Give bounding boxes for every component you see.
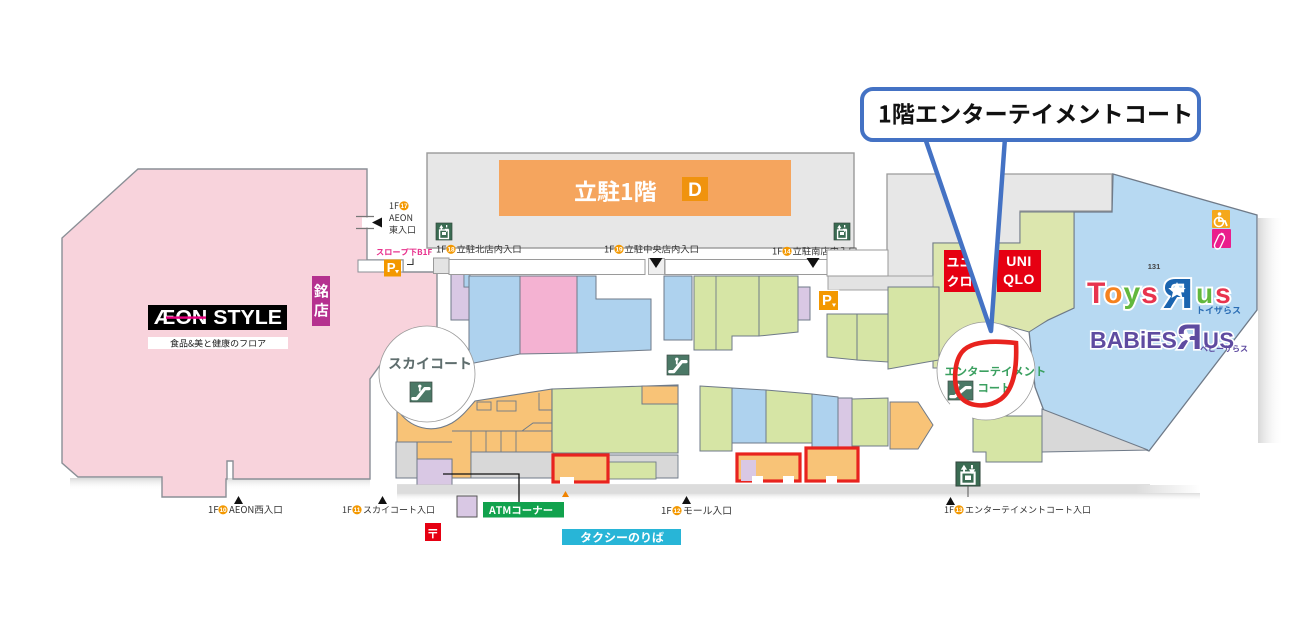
svg-text:12: 12 <box>673 508 681 515</box>
svg-text:D: D <box>688 180 702 201</box>
svg-text:11: 11 <box>354 507 361 514</box>
svg-text:13: 13 <box>955 507 963 514</box>
svg-text:Toys: Toys <box>1087 277 1159 310</box>
svg-text:19: 19 <box>615 247 623 254</box>
svg-text:us: us <box>1196 278 1233 309</box>
svg-text:P: P <box>387 260 396 275</box>
svg-text:14: 14 <box>783 249 791 256</box>
svg-text:BABiES: BABiES <box>1090 327 1177 353</box>
svg-text:131: 131 <box>1148 262 1161 271</box>
svg-text:10: 10 <box>219 507 227 514</box>
svg-text:QLO: QLO <box>1003 271 1035 287</box>
svg-text:18: 18 <box>447 247 455 254</box>
svg-text:P: P <box>822 293 832 309</box>
svg-text:UNI: UNI <box>1006 253 1032 269</box>
svg-text:17: 17 <box>400 203 408 210</box>
svg-text:US: US <box>1203 328 1235 353</box>
